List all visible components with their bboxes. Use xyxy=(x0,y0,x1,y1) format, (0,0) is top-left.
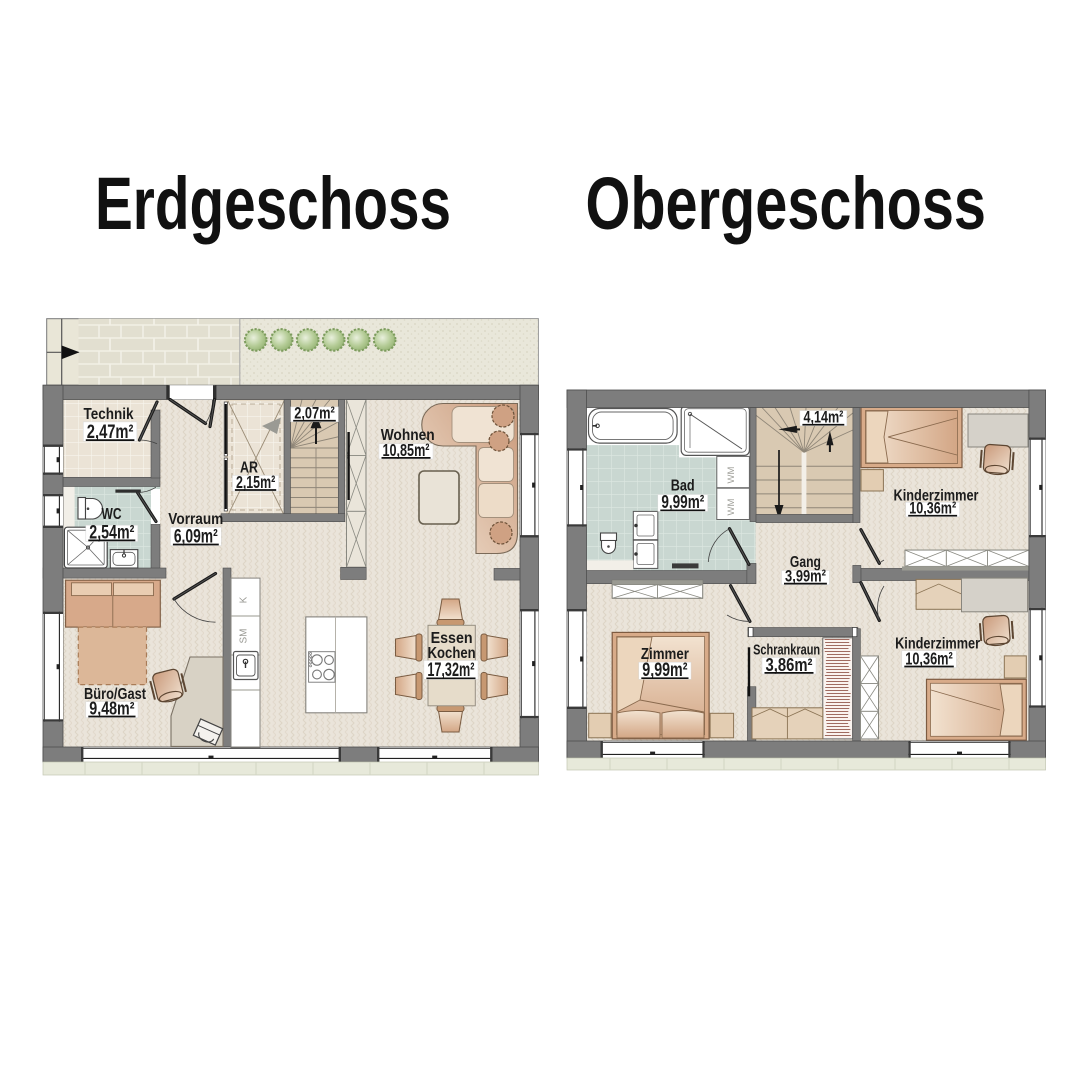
svg-text:WM: WM xyxy=(726,466,737,483)
svg-text:WC: WC xyxy=(102,506,122,523)
svg-text:Technik: Technik xyxy=(84,406,134,423)
svg-text:Erdgeschoss: Erdgeschoss xyxy=(95,162,451,245)
svg-text:2,15m²: 2,15m² xyxy=(236,472,275,492)
svg-text:2,07m²: 2,07m² xyxy=(294,404,335,423)
svg-text:9,99m²: 9,99m² xyxy=(661,491,704,512)
svg-text:10,85m²: 10,85m² xyxy=(383,440,430,460)
svg-text:10,36m²: 10,36m² xyxy=(905,648,953,668)
svg-text:4,14m²: 4,14m² xyxy=(803,408,843,427)
svg-text:SM: SM xyxy=(239,629,250,644)
svg-text:K: K xyxy=(239,596,250,603)
svg-text:WM: WM xyxy=(726,498,737,515)
svg-text:3,86m²: 3,86m² xyxy=(766,655,813,675)
svg-text:Obergeschoss: Obergeschoss xyxy=(586,162,987,245)
svg-text:9,48m²: 9,48m² xyxy=(89,698,134,718)
